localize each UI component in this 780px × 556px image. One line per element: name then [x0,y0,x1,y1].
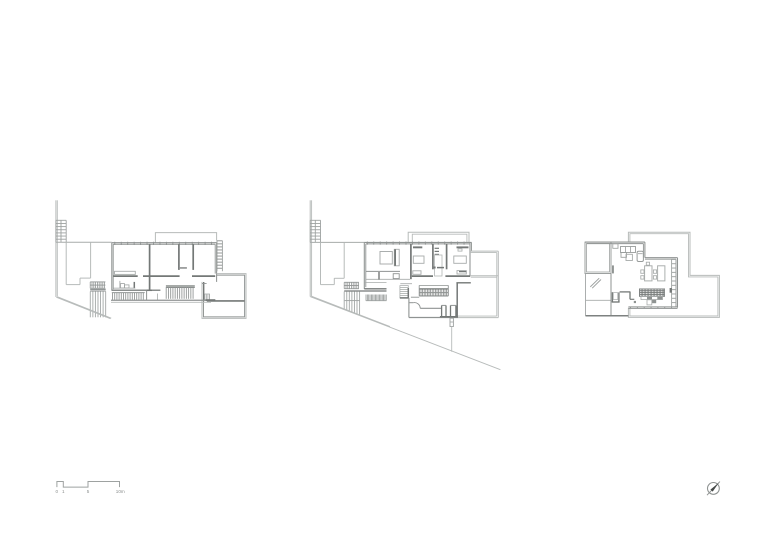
svg-text:5: 5 [87,489,90,494]
svg-text:0: 0 [56,489,59,494]
svg-text:1: 1 [62,489,65,494]
svg-text:10m: 10m [116,489,125,494]
